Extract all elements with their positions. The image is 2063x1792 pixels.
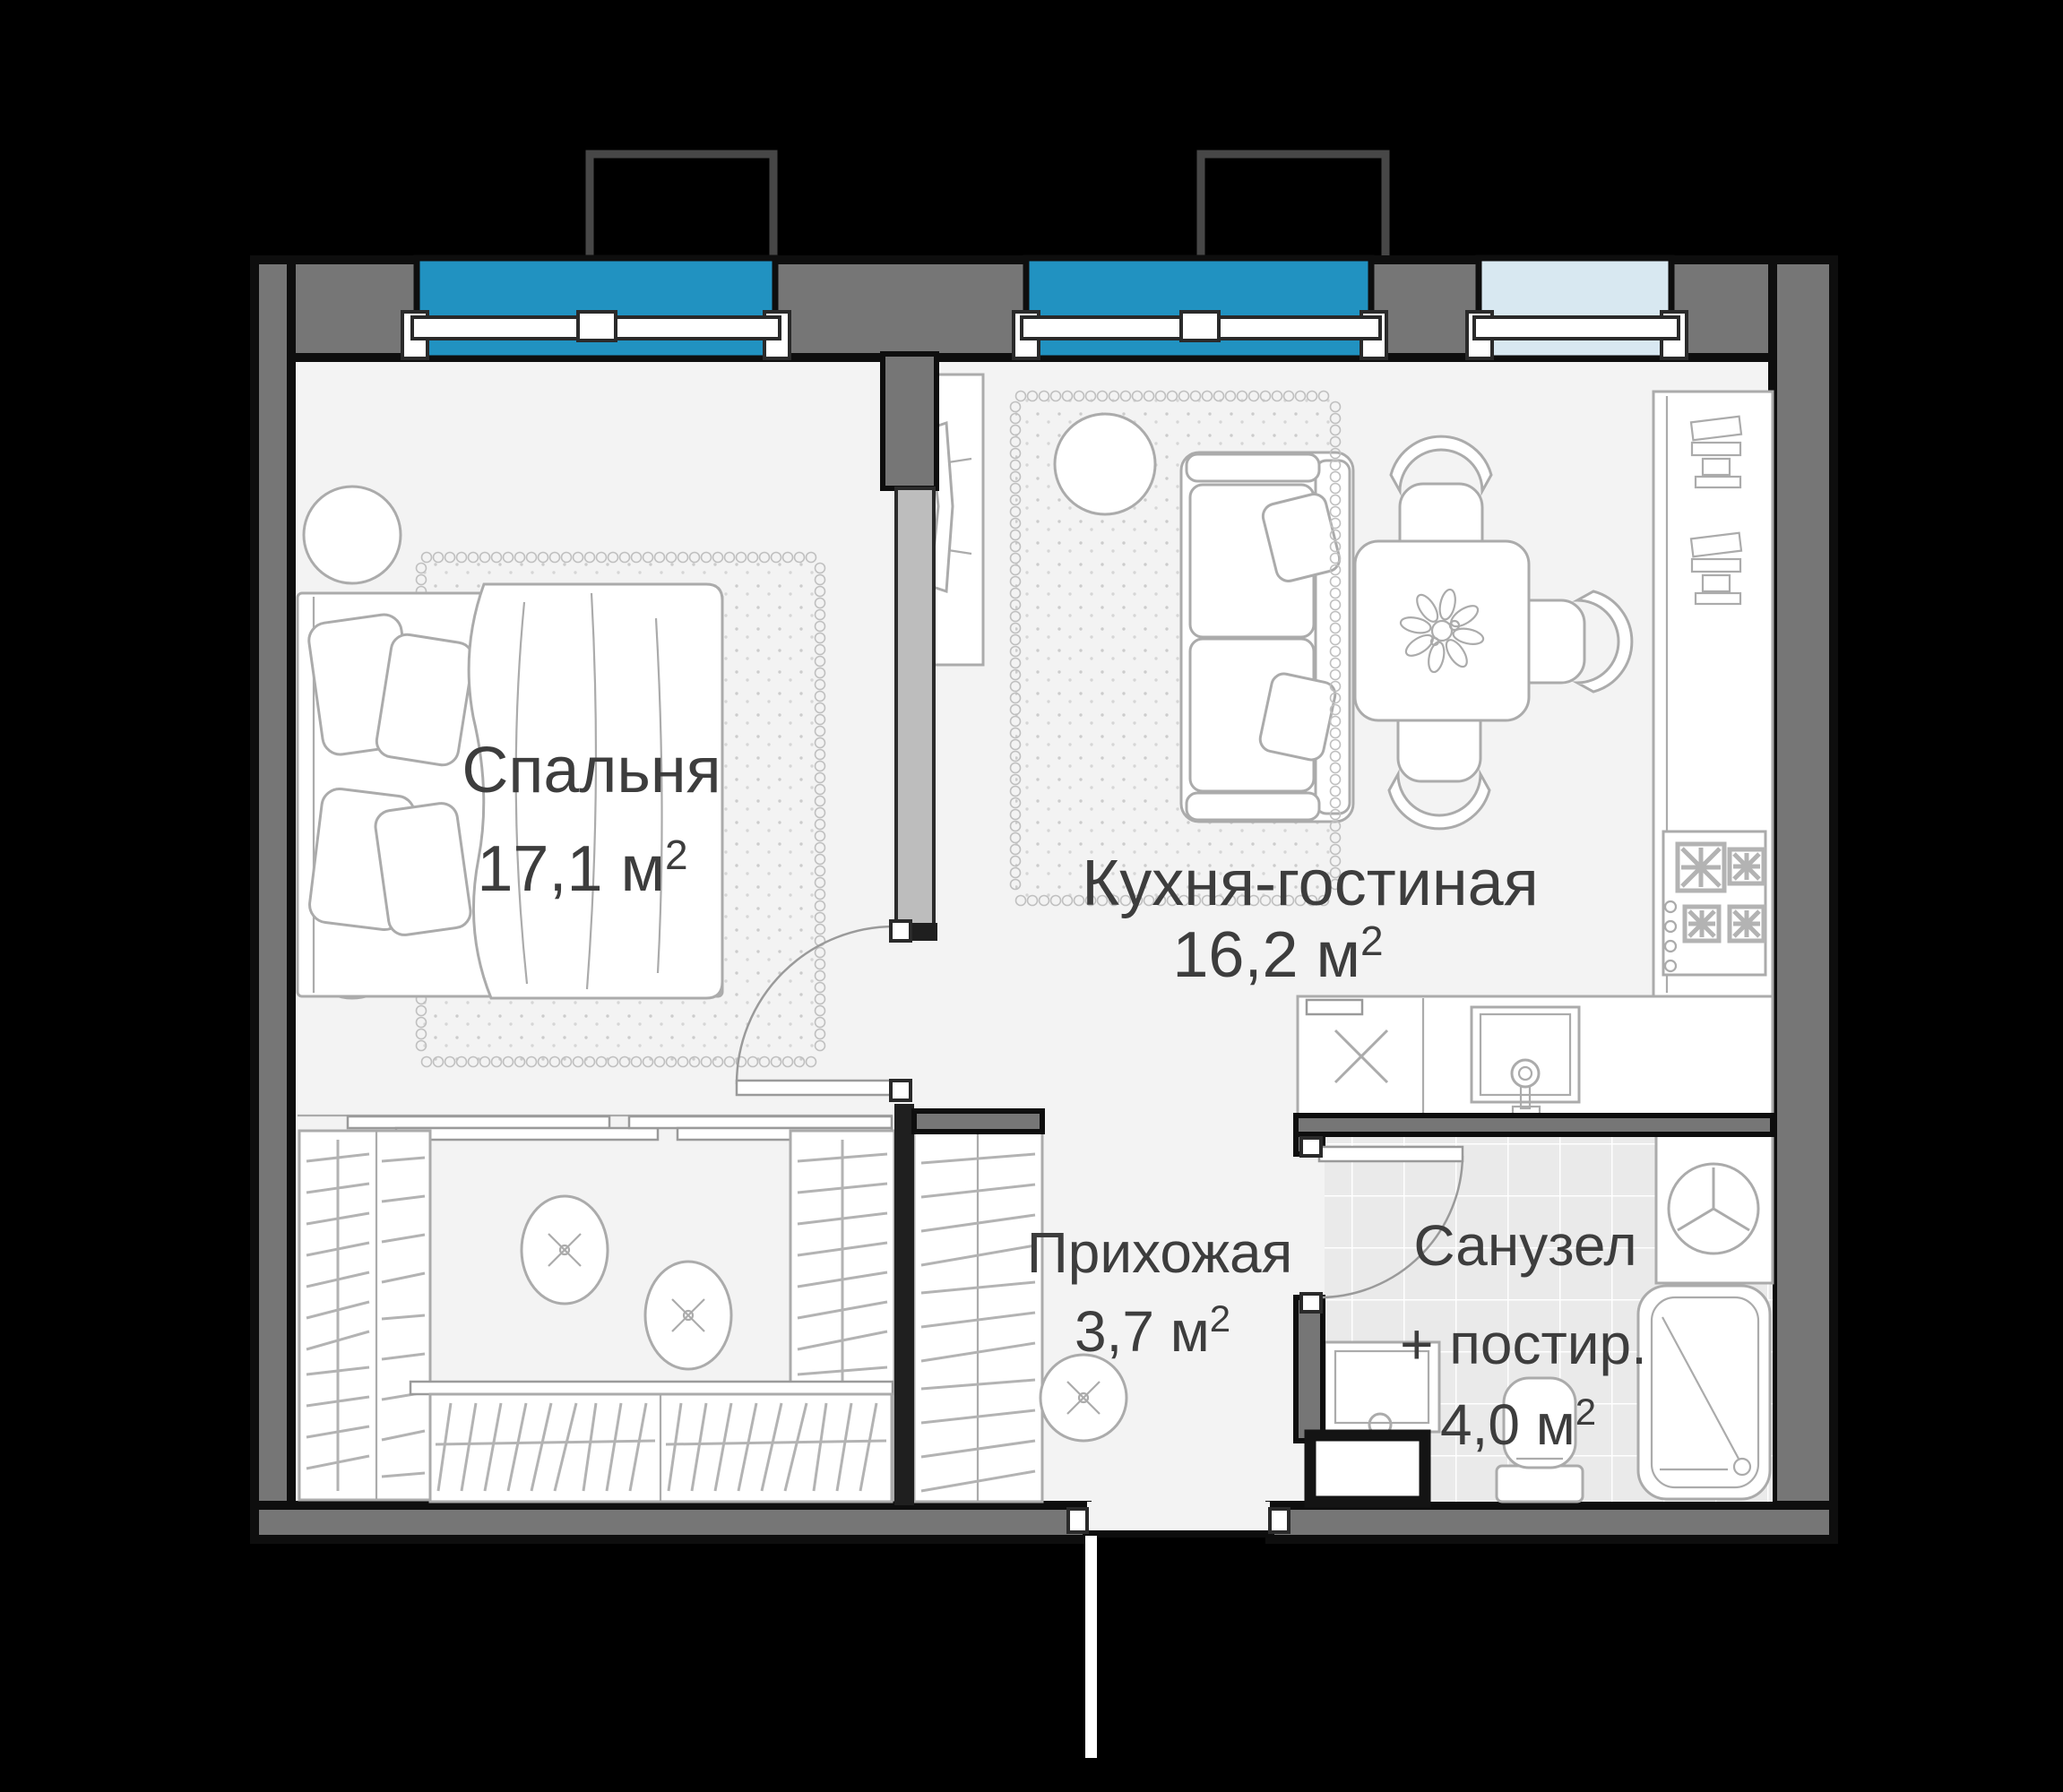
sofa	[1181, 452, 1353, 822]
bedroom-area: 17,1 м2	[477, 831, 687, 905]
right-wall	[1773, 260, 1834, 1539]
wall-kitchen-bathroom	[1296, 1116, 1773, 1134]
window-mullion	[1181, 312, 1219, 340]
window-kitchen	[1014, 258, 1386, 358]
wardrobe-bottom	[410, 1382, 893, 1502]
pillow	[375, 633, 475, 768]
bathroom-left-wall	[1296, 1297, 1323, 1441]
service-shaft	[1310, 1435, 1425, 1502]
kitchen-living-label: Кухня-гостиная	[1082, 848, 1538, 919]
sliding-door	[348, 1116, 609, 1128]
wardrobe-left	[299, 1131, 430, 1500]
closet-top-wall	[914, 1111, 1042, 1132]
balcony-2	[1201, 154, 1385, 260]
entry-door	[1068, 1502, 1289, 1758]
window-mullion	[578, 312, 616, 340]
balcony-1	[590, 154, 773, 260]
bathroom-area: 4,0 м2	[1440, 1391, 1596, 1457]
dining-table	[1355, 541, 1529, 720]
partition-panel	[896, 488, 934, 927]
windows	[402, 258, 1687, 358]
window-kitchen-side	[1467, 258, 1687, 358]
nightstand-top	[304, 487, 401, 583]
bottom-wall-right	[1270, 1505, 1834, 1539]
floor-plan: Спальня 17,1 м2 Кухня-гостиная 16,2 м2 П…	[0, 0, 2063, 1792]
balcony-outlines	[590, 154, 1385, 260]
left-wall	[255, 260, 291, 1539]
floor-plan-page: Спальня 17,1 м2 Кухня-гостиная 16,2 м2 П…	[0, 0, 2063, 1792]
washing-machine	[1656, 1134, 1773, 1283]
entry-door-leaf	[1085, 1536, 1097, 1758]
bathroom-label-2: + постир.	[1400, 1312, 1647, 1376]
kitchen-living-area: 16,2 м2	[1172, 918, 1383, 991]
bathtub	[1638, 1286, 1770, 1499]
stove	[1663, 831, 1765, 975]
bathroom-label-1: Санузел	[1413, 1213, 1636, 1278]
wall-dressing-hallway	[894, 1104, 914, 1505]
sliding-door	[396, 1128, 658, 1140]
partition-bedroom-kitchen	[883, 354, 937, 488]
hallway-label: Прихожая	[1027, 1220, 1293, 1285]
bedroom-label: Спальня	[462, 735, 721, 806]
pillow	[374, 801, 473, 936]
hallway-area: 3,7 м2	[1075, 1297, 1230, 1364]
kitchen-counter-bottom	[1298, 996, 1773, 1116]
round-side-table	[1055, 414, 1155, 514]
window-bedroom	[402, 258, 790, 358]
sliding-door	[629, 1116, 892, 1128]
hallway-closet	[914, 1132, 1042, 1502]
bottom-wall-left	[255, 1505, 1087, 1539]
kitchen-counter-right	[1653, 392, 1773, 997]
